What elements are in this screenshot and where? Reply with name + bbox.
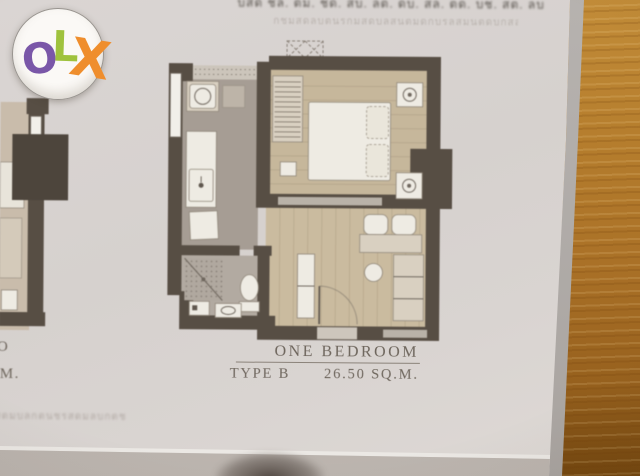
plan-area-label: 26.50 SQ.M. (324, 366, 419, 384)
bath-mat (189, 301, 209, 315)
plan-type-row: TYPE B 26.50 SQ.M. (230, 366, 419, 384)
ac-ledge-marker (287, 41, 323, 58)
hall-table (189, 211, 218, 240)
round-table (364, 263, 382, 281)
pillow (366, 144, 388, 176)
vanity-sink (215, 303, 241, 317)
thai-footnote-illegible: สดมบลกตนชรสดมลบกตช (0, 409, 217, 426)
floor-plan-type-b (159, 39, 453, 351)
adjacent-plan-name-fragment: IO (0, 339, 10, 356)
dining-table (360, 234, 422, 252)
dining-chair (392, 215, 416, 235)
photo-of-floorplan-brochure: บสด ชล. ตม. ชด. สบ. ลต. ดบ. สล. ตด. บช. … (0, 0, 640, 476)
kitchen-window (170, 73, 181, 137)
shear-wall-block (12, 134, 68, 200)
thai-caption-illegible: กชมสดลบตนรกมสดบลสนตมดกบรลสมนตดบกสลมนรด (273, 14, 518, 31)
toilet (240, 275, 258, 301)
pillow (366, 106, 388, 138)
floor-plan-adjacent-partial (0, 98, 77, 339)
console-unit (393, 255, 423, 321)
stool (280, 162, 296, 176)
adjacent-plan-area-fragment: M. (0, 366, 20, 383)
dining-chair (364, 214, 388, 234)
olx-logo-watermark: O L X (12, 8, 104, 100)
plan-type-label: TYPE B (230, 366, 290, 383)
label-underline (236, 362, 420, 364)
plan-name-label: ONE BEDROOM (229, 343, 419, 362)
olx-letter-x: X (66, 31, 114, 89)
cropped-top-text-illegible: บสด ชล. ตม. ชด. สบ. ลต. ดบ. สล. ตด. บช. … (237, 0, 569, 15)
